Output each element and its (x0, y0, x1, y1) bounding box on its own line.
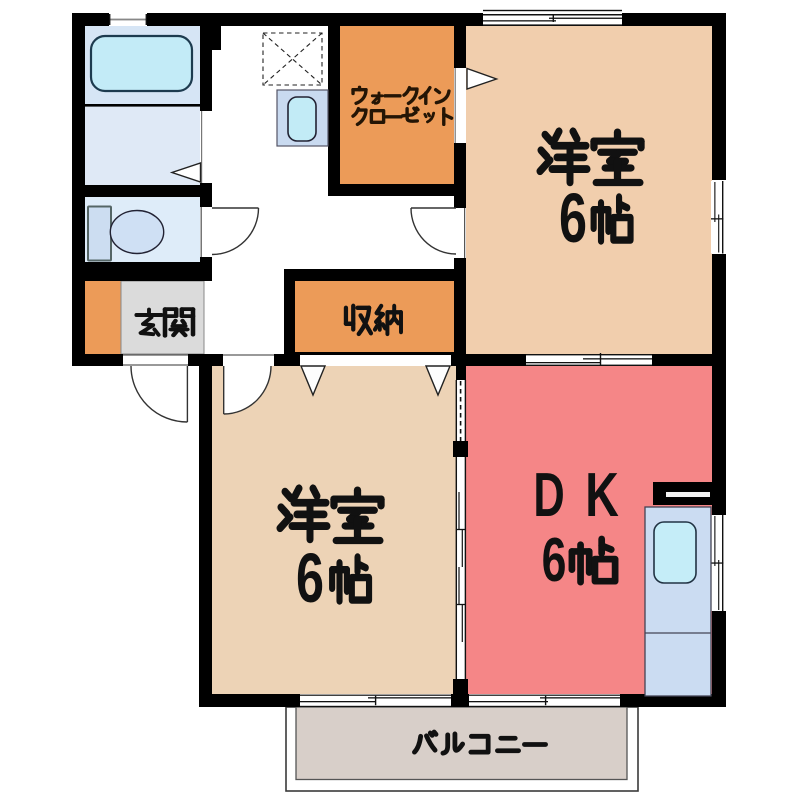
svg-text:6: 6 (296, 539, 324, 617)
svg-text:6: 6 (542, 526, 567, 595)
svg-text:6: 6 (559, 179, 587, 257)
svg-text:D: D (533, 462, 564, 530)
svg-text:K: K (585, 459, 619, 529)
